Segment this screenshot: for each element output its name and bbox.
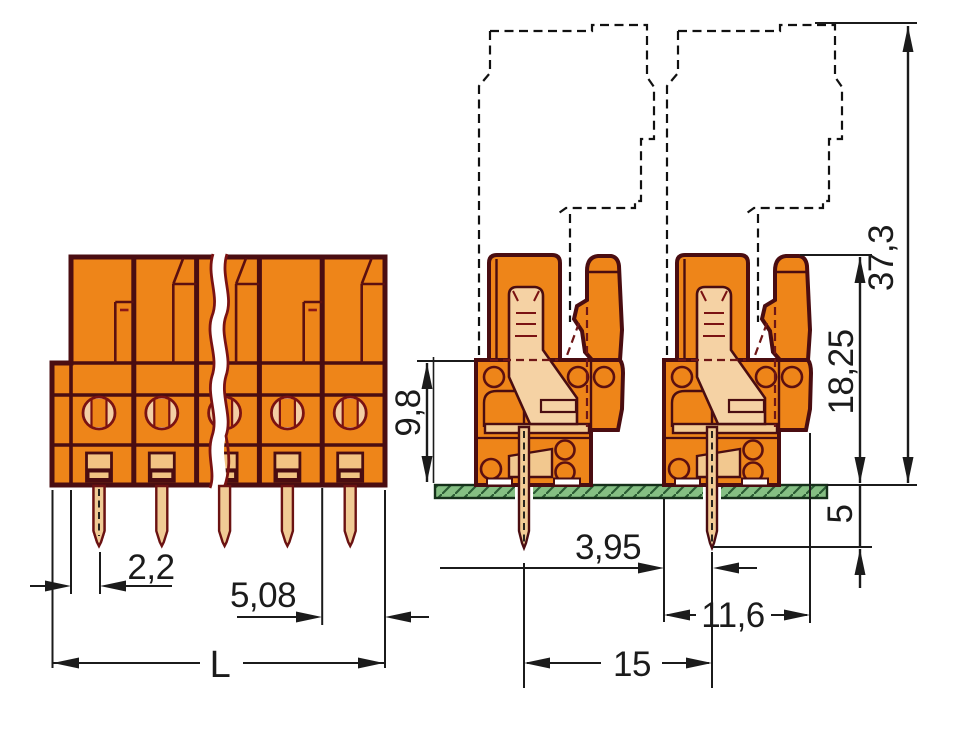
dim-label-body-height: 9,8: [389, 389, 428, 436]
connector-dimensional-drawing: 2,2 5,08 L 3,95 11,6 15 37,3 18,25 9,8 5: [0, 0, 957, 746]
solder-pin-left: [519, 427, 529, 548]
solder-pin-right: [707, 427, 717, 548]
dim-label-total-height: 37,3: [862, 225, 901, 291]
dim-label-pin-offset-front: 2,2: [127, 548, 174, 587]
dim-label-total-length: L: [210, 644, 231, 686]
technical-drawing-page: 2,2 5,08 L 3,95 11,6 15 37,3 18,25 9,8 5: [0, 0, 957, 746]
dim-label-height-above-board: 18,25: [822, 329, 861, 414]
dim-label-pin-offset-side: 3,95: [575, 528, 641, 567]
dim-label-row-spacing: 15: [613, 645, 651, 684]
dim-label-pitch: 5,08: [230, 576, 296, 615]
dim-label-body-depth: 11,6: [701, 596, 765, 635]
dim-label-pin-below-board: 5: [821, 505, 860, 524]
